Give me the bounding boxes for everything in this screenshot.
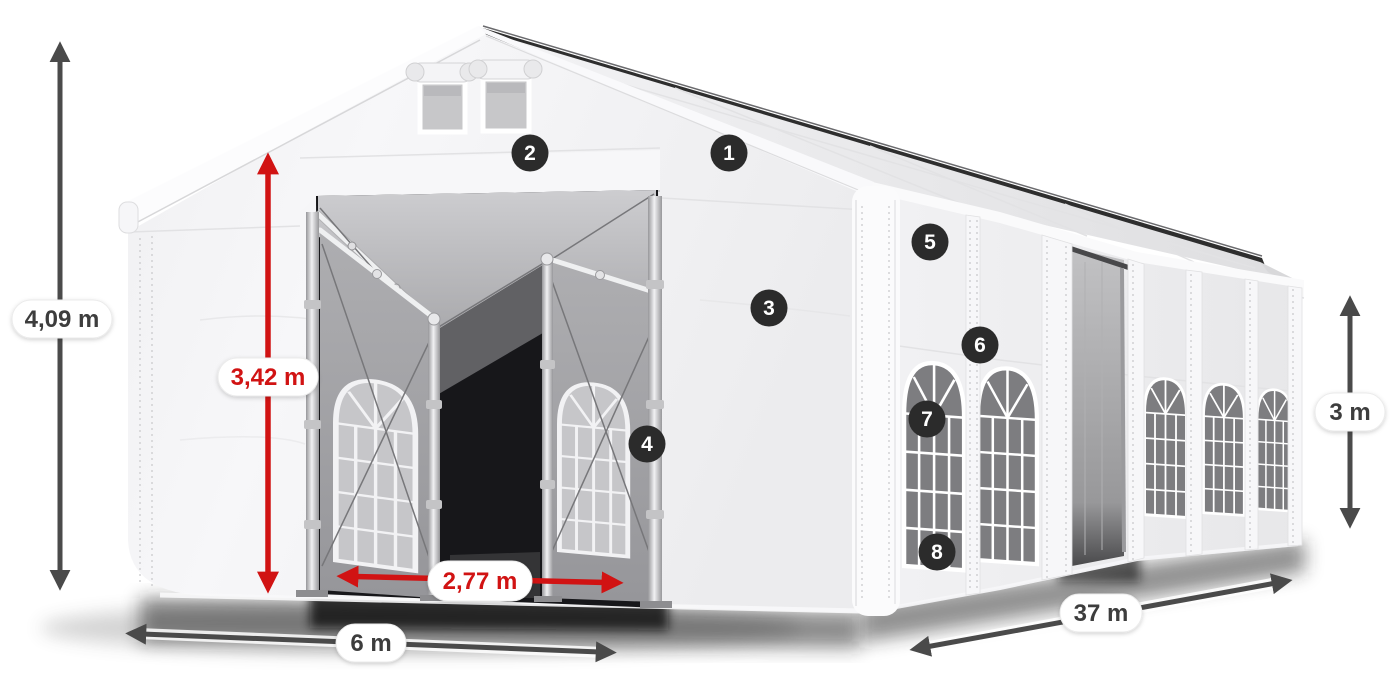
side-window-5: [1257, 388, 1292, 511]
tent-illustration: 1 2 3 4 5 6 7 8: [0, 0, 1400, 700]
entrance-height-label: 3,42 m: [231, 364, 306, 391]
badge-6[interactable]: 6: [962, 327, 999, 364]
badge-1[interactable]: 1: [711, 135, 748, 172]
badge-4-number: 4: [641, 433, 653, 456]
tent-dimensions-diagram: 1 2 3 4 5 6 7 8: [0, 0, 1400, 700]
entrance-width-label: 2,77 m: [443, 568, 518, 595]
side-open-section: [1066, 247, 1130, 566]
badge-5-number: 5: [924, 231, 936, 254]
fascia-end-cap: [119, 202, 138, 233]
length-label: 37 m: [1074, 600, 1129, 627]
side-height-label: 3 m: [1329, 399, 1370, 426]
dimension-side-height: 3 m: [1315, 306, 1385, 518]
badge-7-number: 7: [921, 408, 933, 431]
badge-3-number: 3: [763, 297, 775, 320]
badge-2[interactable]: 2: [512, 135, 549, 172]
badge-1-number: 1: [723, 142, 735, 165]
badge-7[interactable]: 7: [909, 401, 946, 438]
badge-4[interactable]: 4: [629, 426, 666, 463]
side-window-2: [978, 366, 1037, 564]
dimension-total-height: 4,09 m: [12, 52, 112, 580]
entrance-opening: [296, 190, 672, 608]
badge-8-number: 8: [931, 541, 943, 564]
badge-2-number: 2: [524, 142, 536, 165]
side-window-4: [1203, 383, 1244, 515]
badge-3[interactable]: 3: [751, 290, 788, 327]
width-label: 6 m: [350, 630, 391, 657]
side-window-3: [1145, 377, 1187, 517]
total-height-label: 4,09 m: [25, 306, 100, 333]
badge-6-number: 6: [974, 334, 986, 357]
badge-8[interactable]: 8: [919, 534, 956, 571]
door-window-left: [336, 376, 416, 571]
badge-5[interactable]: 5: [912, 224, 949, 261]
corner-column: [852, 186, 900, 616]
